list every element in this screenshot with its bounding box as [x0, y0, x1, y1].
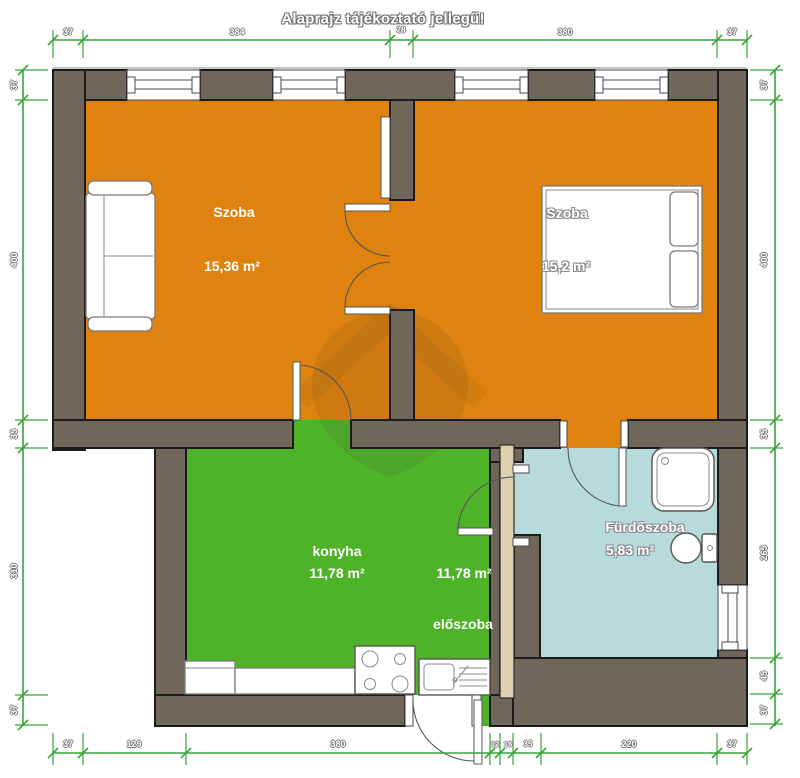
- dim-right-4: 45: [759, 671, 769, 681]
- room-hall-name: előszoba: [433, 616, 493, 632]
- dim-ticks-bottom: [48, 733, 752, 765]
- plan-title: Alaprajz tájékoztató jellegű!: [281, 11, 484, 28]
- kitchen-cabinet: [185, 661, 235, 694]
- wall-between-bedrooms-top: [390, 100, 414, 200]
- dim-right-5: 37: [759, 705, 769, 715]
- room-kitchen-name: konyha: [312, 543, 361, 559]
- wall-kitchen-bottom: [155, 695, 405, 726]
- dim-top-0: 37: [63, 27, 73, 37]
- doorway-between-rooms-floor: [390, 200, 414, 310]
- wall-kitchen-left: [155, 448, 186, 726]
- dim-top-2: 28: [397, 26, 406, 35]
- dim-top-1: 384: [229, 27, 244, 37]
- room-hall-area: 11,78 m²: [436, 565, 491, 581]
- doorway-bathroom-floor: [560, 420, 628, 448]
- room-bedroom-area: 15,2 m²: [542, 258, 590, 274]
- dim-left-1: 400: [9, 252, 19, 267]
- kitchen-sink: [419, 659, 490, 695]
- room-bedroom-name: Szoba: [546, 205, 587, 221]
- stove: [355, 646, 415, 694]
- shower: [652, 448, 714, 511]
- room-living-area: 15,36 m²: [204, 258, 260, 274]
- dim-right-3: 265: [759, 545, 769, 560]
- dim-left-4: 37: [9, 705, 19, 715]
- room-bathroom-area: 5,83 m²: [606, 542, 654, 558]
- wall-between-bedrooms-bottom: [390, 310, 414, 420]
- window-top-1: [127, 70, 200, 100]
- room-kitchen-area: 11,78 m²: [309, 565, 364, 581]
- window-top-3: [455, 70, 528, 100]
- window-right: [718, 585, 747, 650]
- wall-left: [53, 70, 85, 450]
- floor-plan: Alaprajz tájékoztató jellegű! Szoba 15,3…: [0, 0, 800, 778]
- dim-right-0: 37: [759, 80, 769, 90]
- dim-left-2: 35: [9, 429, 19, 439]
- dim-bottom-4: 16: [504, 740, 512, 749]
- floor-plan-drawing: [0, 0, 800, 778]
- dim-left-0: 37: [9, 80, 19, 90]
- kitchen-counter: [235, 668, 355, 694]
- dim-bottom-6: 220: [621, 739, 636, 749]
- dim-right-2: 35: [759, 429, 769, 439]
- dim-bottom-1: 129: [126, 739, 141, 749]
- dim-right-1: 400: [759, 252, 769, 267]
- open-door-panel: [381, 117, 390, 198]
- dim-bottom-7: 37: [727, 739, 737, 749]
- dim-bottom-0: 37: [63, 739, 73, 749]
- dim-bottom-5: 35: [524, 740, 533, 749]
- room-bathroom-name: Fürdőszoba: [605, 519, 684, 535]
- dim-left-3: 310: [9, 563, 19, 578]
- dim-bottom-3: 12: [491, 740, 499, 749]
- toilet: [671, 533, 717, 563]
- dim-ticks-right: [750, 65, 783, 729]
- dim-bottom-2: 380: [330, 739, 345, 749]
- room-living-name: Szoba: [213, 204, 254, 220]
- window-top-2: [273, 70, 345, 100]
- partition-strip: [500, 445, 514, 698]
- sofa: [86, 181, 155, 331]
- dim-top-3: 380: [557, 27, 572, 37]
- window-top-4: [595, 70, 668, 100]
- wall-bathroom-bottom: [513, 658, 747, 726]
- dim-top-4: 37: [727, 27, 737, 37]
- wall-right-upper: [718, 70, 747, 585]
- dim-ticks-left: [15, 65, 48, 730]
